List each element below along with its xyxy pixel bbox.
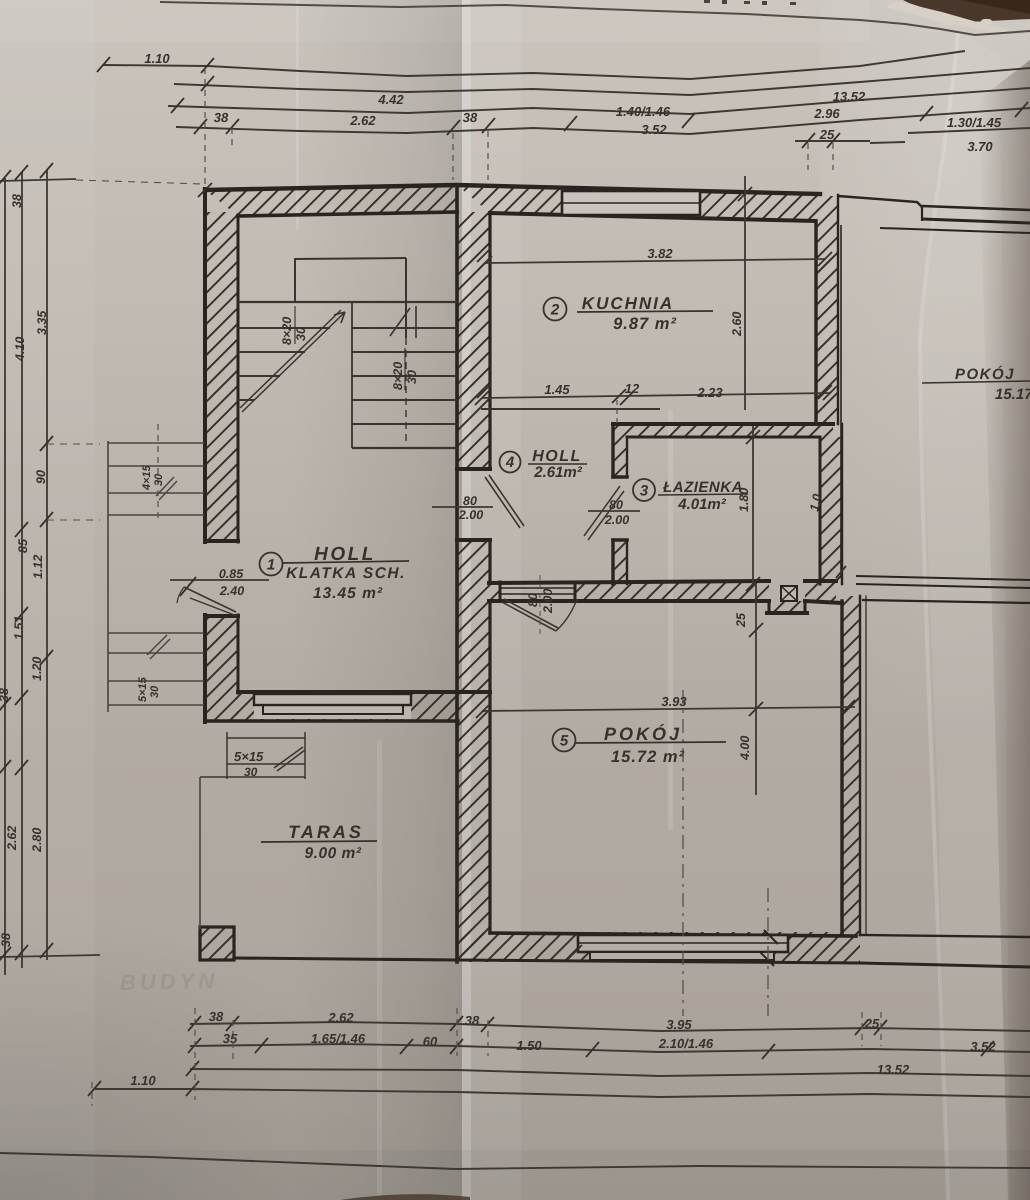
svg-text:2.60: 2.60 (730, 312, 744, 337)
svg-text:1.12: 1.12 (31, 555, 45, 579)
svg-text:BUDYN: BUDYN (120, 968, 219, 995)
svg-text:13.45 m²: 13.45 m² (313, 585, 383, 602)
svg-text:30: 30 (149, 685, 161, 698)
svg-text:TARAS: TARAS (288, 822, 364, 842)
svg-text:5×15: 5×15 (137, 676, 149, 702)
svg-text:3.52: 3.52 (970, 1039, 996, 1054)
svg-text:38: 38 (209, 1009, 224, 1024)
svg-text:1.30/1.45: 1.30/1.45 (947, 115, 1002, 130)
svg-text:2.10/1.46: 2.10/1.46 (658, 1036, 714, 1051)
svg-text:9.00 m²: 9.00 m² (305, 845, 362, 862)
svg-text:0.85: 0.85 (219, 567, 244, 581)
svg-text:80: 80 (463, 494, 477, 508)
svg-text:38: 38 (10, 194, 24, 208)
svg-text:25: 25 (864, 1016, 880, 1031)
svg-text:80: 80 (526, 593, 540, 607)
svg-text:4.00: 4.00 (738, 736, 752, 761)
svg-text:30: 30 (294, 327, 308, 341)
svg-text:13.52: 13.52 (833, 89, 866, 104)
svg-text:38: 38 (214, 110, 229, 125)
svg-text:HOLL: HOLL (532, 448, 582, 465)
svg-text:60: 60 (423, 1034, 438, 1049)
svg-text:2.23: 2.23 (696, 385, 723, 400)
svg-text:1.80: 1.80 (737, 488, 751, 512)
svg-text:5×15: 5×15 (234, 749, 264, 764)
svg-text:1.65/1.46: 1.65/1.46 (311, 1031, 366, 1046)
svg-text:80: 80 (609, 498, 623, 512)
svg-text:38: 38 (0, 933, 13, 947)
svg-text:3: 3 (640, 483, 649, 500)
svg-text:3.95: 3.95 (666, 1017, 692, 1032)
svg-text:1.20: 1.20 (30, 657, 44, 681)
svg-text:85: 85 (16, 538, 30, 553)
svg-text:4.01m²: 4.01m² (677, 496, 727, 513)
svg-text:38: 38 (465, 1013, 480, 1028)
svg-text:3.70: 3.70 (967, 139, 993, 154)
svg-text:4.10: 4.10 (13, 337, 27, 362)
svg-text:1.10: 1.10 (144, 51, 170, 66)
svg-text:1.45: 1.45 (544, 382, 570, 397)
svg-text:4×15: 4×15 (141, 464, 153, 491)
svg-text:90: 90 (34, 470, 48, 484)
svg-text:30: 30 (405, 370, 419, 384)
svg-text:9.87 m²: 9.87 m² (613, 315, 677, 333)
svg-text:2.62: 2.62 (5, 826, 19, 851)
svg-text:38: 38 (0, 688, 11, 702)
svg-text:2.00: 2.00 (604, 513, 629, 527)
svg-text:30: 30 (244, 765, 258, 779)
svg-text:4: 4 (505, 454, 515, 471)
svg-text:3.93: 3.93 (661, 694, 687, 709)
svg-text:15.72 m²: 15.72 m² (611, 748, 685, 766)
svg-text:2.62: 2.62 (327, 1010, 354, 1025)
svg-text:35: 35 (223, 1031, 238, 1046)
svg-text:1: 1 (267, 557, 275, 574)
svg-text:5: 5 (560, 733, 569, 750)
svg-text:KLATKA SCH.: KLATKA SCH. (286, 565, 406, 582)
svg-text:2.96: 2.96 (813, 106, 840, 121)
svg-text:KUCHNIA: KUCHNIA (582, 294, 674, 313)
svg-text:25: 25 (734, 612, 748, 628)
svg-text:4.42: 4.42 (377, 92, 404, 107)
svg-text:8×20: 8×20 (391, 362, 405, 390)
svg-text:2.00: 2.00 (541, 589, 555, 614)
svg-text:38: 38 (463, 110, 478, 125)
svg-text:POKÓJ: POKÓJ (604, 724, 682, 744)
svg-text:2.40: 2.40 (219, 584, 244, 598)
svg-text:3.35: 3.35 (35, 310, 49, 335)
svg-text:2.62: 2.62 (349, 113, 376, 128)
svg-text:2: 2 (550, 302, 560, 319)
svg-text:30: 30 (153, 473, 165, 486)
svg-text:1.40/1.46: 1.40/1.46 (616, 104, 671, 119)
svg-text:POKÓJ: POKÓJ (955, 365, 1015, 383)
svg-text:12: 12 (625, 381, 640, 396)
svg-text:2.80: 2.80 (30, 828, 44, 853)
svg-text:8×20: 8×20 (280, 317, 294, 345)
svg-text:3.52: 3.52 (641, 122, 667, 137)
svg-text:1.50: 1.50 (516, 1038, 542, 1053)
svg-text:25: 25 (819, 127, 835, 142)
svg-text:3.82: 3.82 (647, 246, 673, 261)
svg-text:1.51: 1.51 (12, 616, 26, 640)
svg-text:2.00: 2.00 (458, 508, 483, 522)
svg-text:1.10: 1.10 (130, 1073, 156, 1088)
svg-text:13.52: 13.52 (877, 1062, 910, 1077)
svg-text:2.61m²: 2.61m² (533, 464, 583, 481)
svg-text:15.17 m²: 15.17 m² (995, 386, 1030, 403)
